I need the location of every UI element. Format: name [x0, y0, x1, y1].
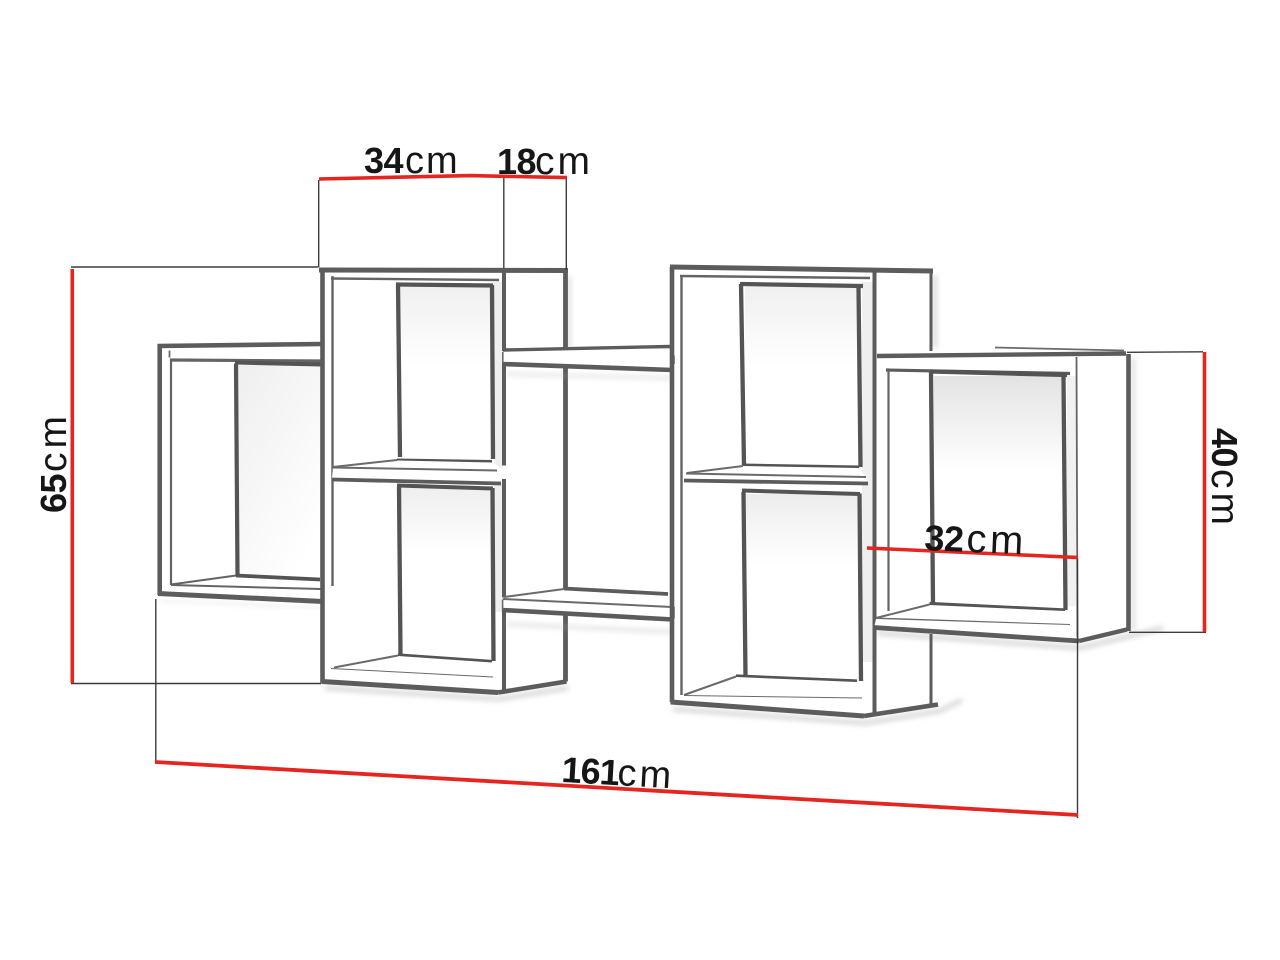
svg-text:34: 34 — [364, 140, 404, 181]
svg-text:18: 18 — [497, 141, 536, 182]
svg-text:cm: cm — [535, 140, 593, 183]
svg-text:cm: cm — [32, 412, 75, 472]
svg-text:32: 32 — [924, 517, 965, 560]
svg-text:161: 161 — [561, 749, 621, 793]
svg-text:65: 65 — [33, 473, 74, 513]
svg-text:cm: cm — [616, 752, 675, 797]
svg-text:40: 40 — [1204, 428, 1245, 467]
svg-text:cm: cm — [405, 140, 460, 182]
svg-text:cm: cm — [966, 517, 1028, 564]
svg-text:cm: cm — [1203, 469, 1246, 529]
